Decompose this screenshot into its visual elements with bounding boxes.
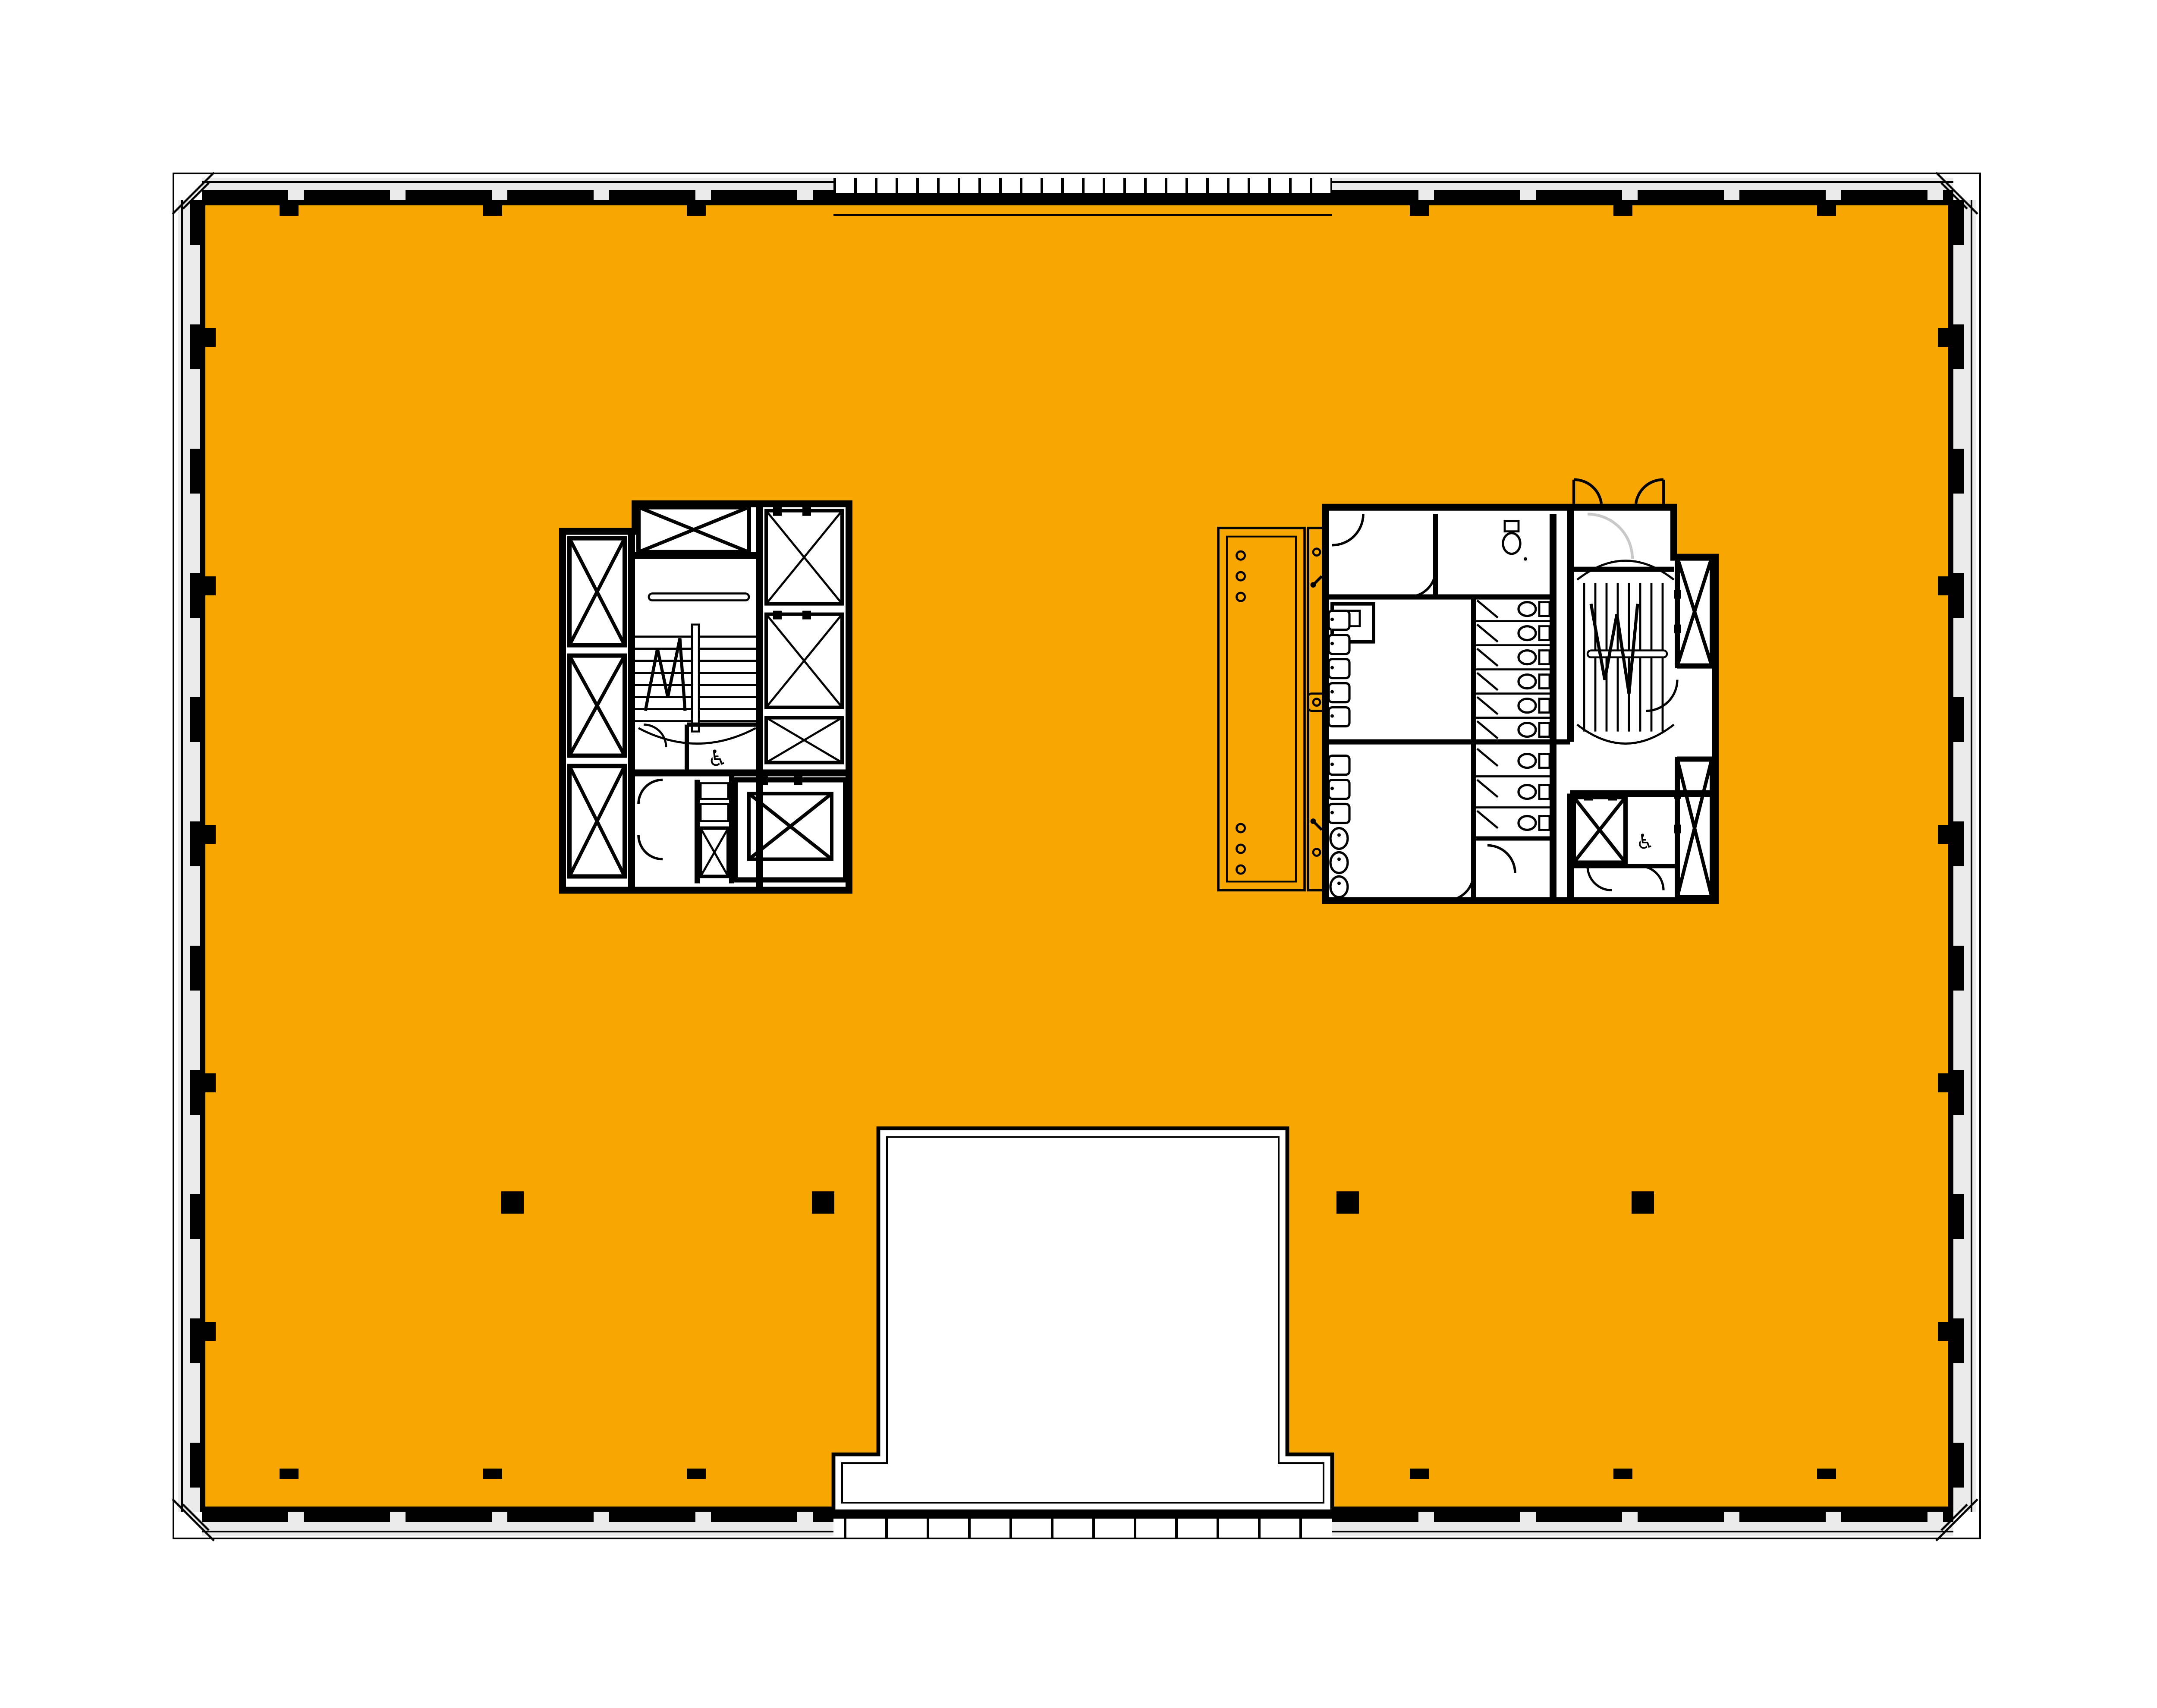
east-core-exterior-doors xyxy=(1574,480,1663,504)
east-core-sinks-north xyxy=(1329,611,1349,727)
east-core-stalls-north xyxy=(1474,601,1553,739)
east-core: ♿ xyxy=(1218,480,1715,901)
atrium-cutout xyxy=(833,1128,1332,1511)
east-core-bench-strip xyxy=(1218,528,1325,890)
wheelchair-icon: ♿ xyxy=(1636,830,1654,854)
column xyxy=(1336,1191,1359,1214)
wheelchair-icon: ♿ xyxy=(707,746,728,772)
column xyxy=(812,1191,834,1214)
floor-plan-canvas: ♿ xyxy=(0,0,2157,1708)
column xyxy=(1632,1191,1654,1214)
west-core: ♿ xyxy=(563,504,849,890)
column xyxy=(501,1191,524,1214)
plan-vector-layer: ♿ xyxy=(0,0,2157,1708)
